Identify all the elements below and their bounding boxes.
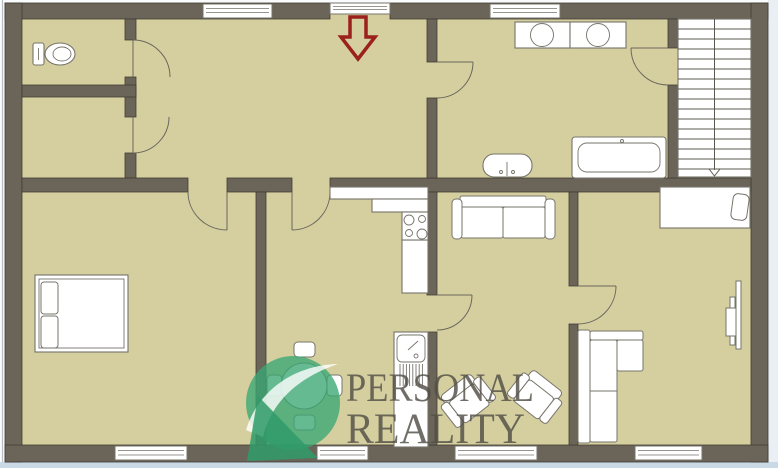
logo-watermark: PERSONAL REALITY <box>246 356 534 461</box>
wall-segment <box>390 3 768 19</box>
double-bed <box>35 275 128 352</box>
washing-machine <box>515 22 570 48</box>
wall-segment <box>227 178 292 192</box>
wall-segment <box>427 98 437 178</box>
wall-segment <box>668 85 678 178</box>
wall-segment <box>427 19 437 62</box>
stove-4-burners <box>402 212 428 240</box>
water-heater <box>483 154 532 177</box>
wall-segment <box>5 3 22 462</box>
bathtub <box>572 137 666 178</box>
logo-text-line1: PERSONAL <box>346 365 534 410</box>
staircase <box>678 19 751 177</box>
logo-text-line2: REALITY <box>346 406 525 453</box>
wall-segment <box>751 3 768 462</box>
window <box>490 4 560 18</box>
pillow <box>41 316 58 348</box>
wall-segment <box>5 3 330 19</box>
dryer <box>570 22 626 48</box>
wall-segment <box>569 192 578 286</box>
wall-segment <box>668 19 678 48</box>
chair <box>294 342 315 357</box>
floor-plan-viewer: PERSONAL REALITY <box>0 0 778 468</box>
window <box>635 446 702 460</box>
toilet <box>33 43 75 65</box>
wall-segment <box>569 324 578 445</box>
two-seat-sofa <box>452 196 555 239</box>
wall-segment <box>125 19 136 40</box>
frame-right-strip <box>768 0 778 468</box>
window <box>115 446 187 460</box>
frame-bottom-strip <box>0 462 778 468</box>
pillow <box>730 193 749 221</box>
wall-segment <box>125 153 136 178</box>
pillow <box>41 282 58 314</box>
window <box>203 4 272 18</box>
wall-segment <box>22 178 188 192</box>
entrance-opening <box>330 3 390 14</box>
floor-plan-image: PERSONAL REALITY <box>0 0 778 468</box>
wall-segment <box>22 85 136 97</box>
entrance-threshold <box>330 3 390 14</box>
single-bed <box>660 187 750 228</box>
